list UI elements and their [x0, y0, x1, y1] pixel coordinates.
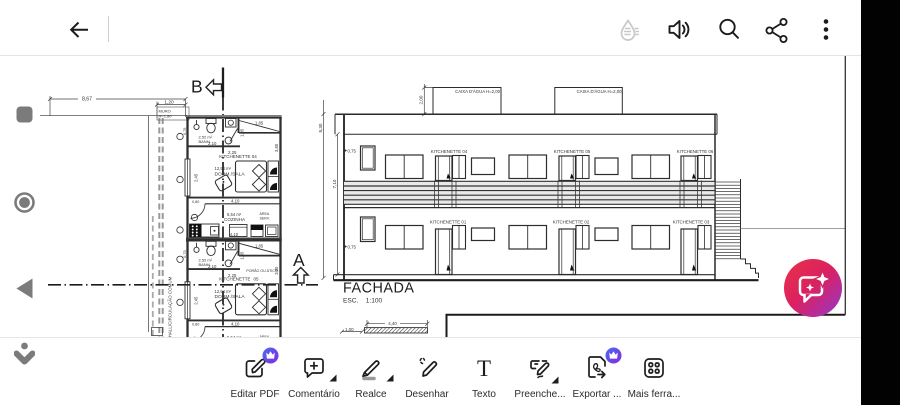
svg-text:0,75: 0,75 — [348, 149, 357, 154]
svg-text:0,80: 0,80 — [192, 200, 199, 204]
svg-text:KITCHENETTE 03: KITCHENETTE 03 — [673, 220, 710, 225]
svg-text:SERV.: SERV. — [260, 217, 270, 221]
svg-text:A: A — [293, 250, 305, 270]
svg-text:2,45: 2,45 — [194, 173, 199, 182]
svg-text:3,80: 3,80 — [274, 143, 279, 152]
svg-text:DORM./SALA: DORM./SALA — [215, 171, 246, 177]
svg-text:0,75: 0,75 — [348, 245, 357, 250]
svg-text:1,20: 1,20 — [164, 99, 174, 105]
svg-text:ESC. 1:100: ESC. 1:100 — [343, 298, 383, 305]
svg-text:KITCHENETTE 04: KITCHENETTE 04 — [219, 154, 257, 159]
svg-text:COZINHA: COZINHA — [224, 217, 246, 222]
svg-text:H=1,80: H=1,80 — [159, 114, 173, 119]
svg-text:CAIXA D'ÁGUA H=2,00: CAIXA D'ÁGUA H=2,00 — [455, 89, 500, 94]
svg-text:KITCHENETTE 01: KITCHENETTE 01 — [430, 220, 467, 225]
svg-text:0,75: 0,75 — [183, 128, 187, 135]
svg-text:1,00: 1,00 — [345, 327, 354, 332]
svg-text:FACHADA: FACHADA — [343, 281, 414, 297]
svg-text:HALL/CIRCULAÇÃO COMUM: HALL/CIRCULAÇÃO COMUM — [167, 276, 173, 337]
svg-text:B: B — [191, 77, 203, 97]
svg-text:PORÃO OU ÁTICO: PORÃO OU ÁTICO — [246, 268, 278, 273]
svg-text:1,35: 1,35 — [240, 128, 245, 137]
svg-text:T: T — [477, 356, 491, 381]
svg-text:4,10: 4,10 — [231, 199, 240, 204]
svg-text:12,54 m²: 12,54 m² — [215, 166, 232, 171]
svg-text:KITCHENETTE 06: KITCHENETTE 06 — [677, 149, 714, 154]
svg-text:ÁREA: ÁREA — [260, 212, 270, 216]
svg-text:KITCHENETTE 04: KITCHENETTE 04 — [431, 149, 468, 154]
svg-text:CAIXA D'ÁGUA H=2,00: CAIXA D'ÁGUA H=2,00 — [577, 89, 622, 94]
svg-text:8,67: 8,67 — [82, 97, 92, 103]
svg-text:2,00: 2,00 — [419, 95, 424, 104]
svg-text:KITCHENETTE 02: KITCHENETTE 02 — [553, 220, 590, 225]
svg-text:8,30: 8,30 — [318, 123, 323, 132]
svg-text:05: 05 — [253, 277, 259, 282]
svg-text:2,10: 2,10 — [208, 141, 217, 146]
svg-text:KITCHENETTE 05: KITCHENETTE 05 — [554, 149, 591, 154]
svg-text:4,40: 4,40 — [388, 321, 397, 326]
svg-text:7,10: 7,10 — [332, 179, 337, 188]
svg-text:1,85: 1,85 — [255, 121, 264, 126]
